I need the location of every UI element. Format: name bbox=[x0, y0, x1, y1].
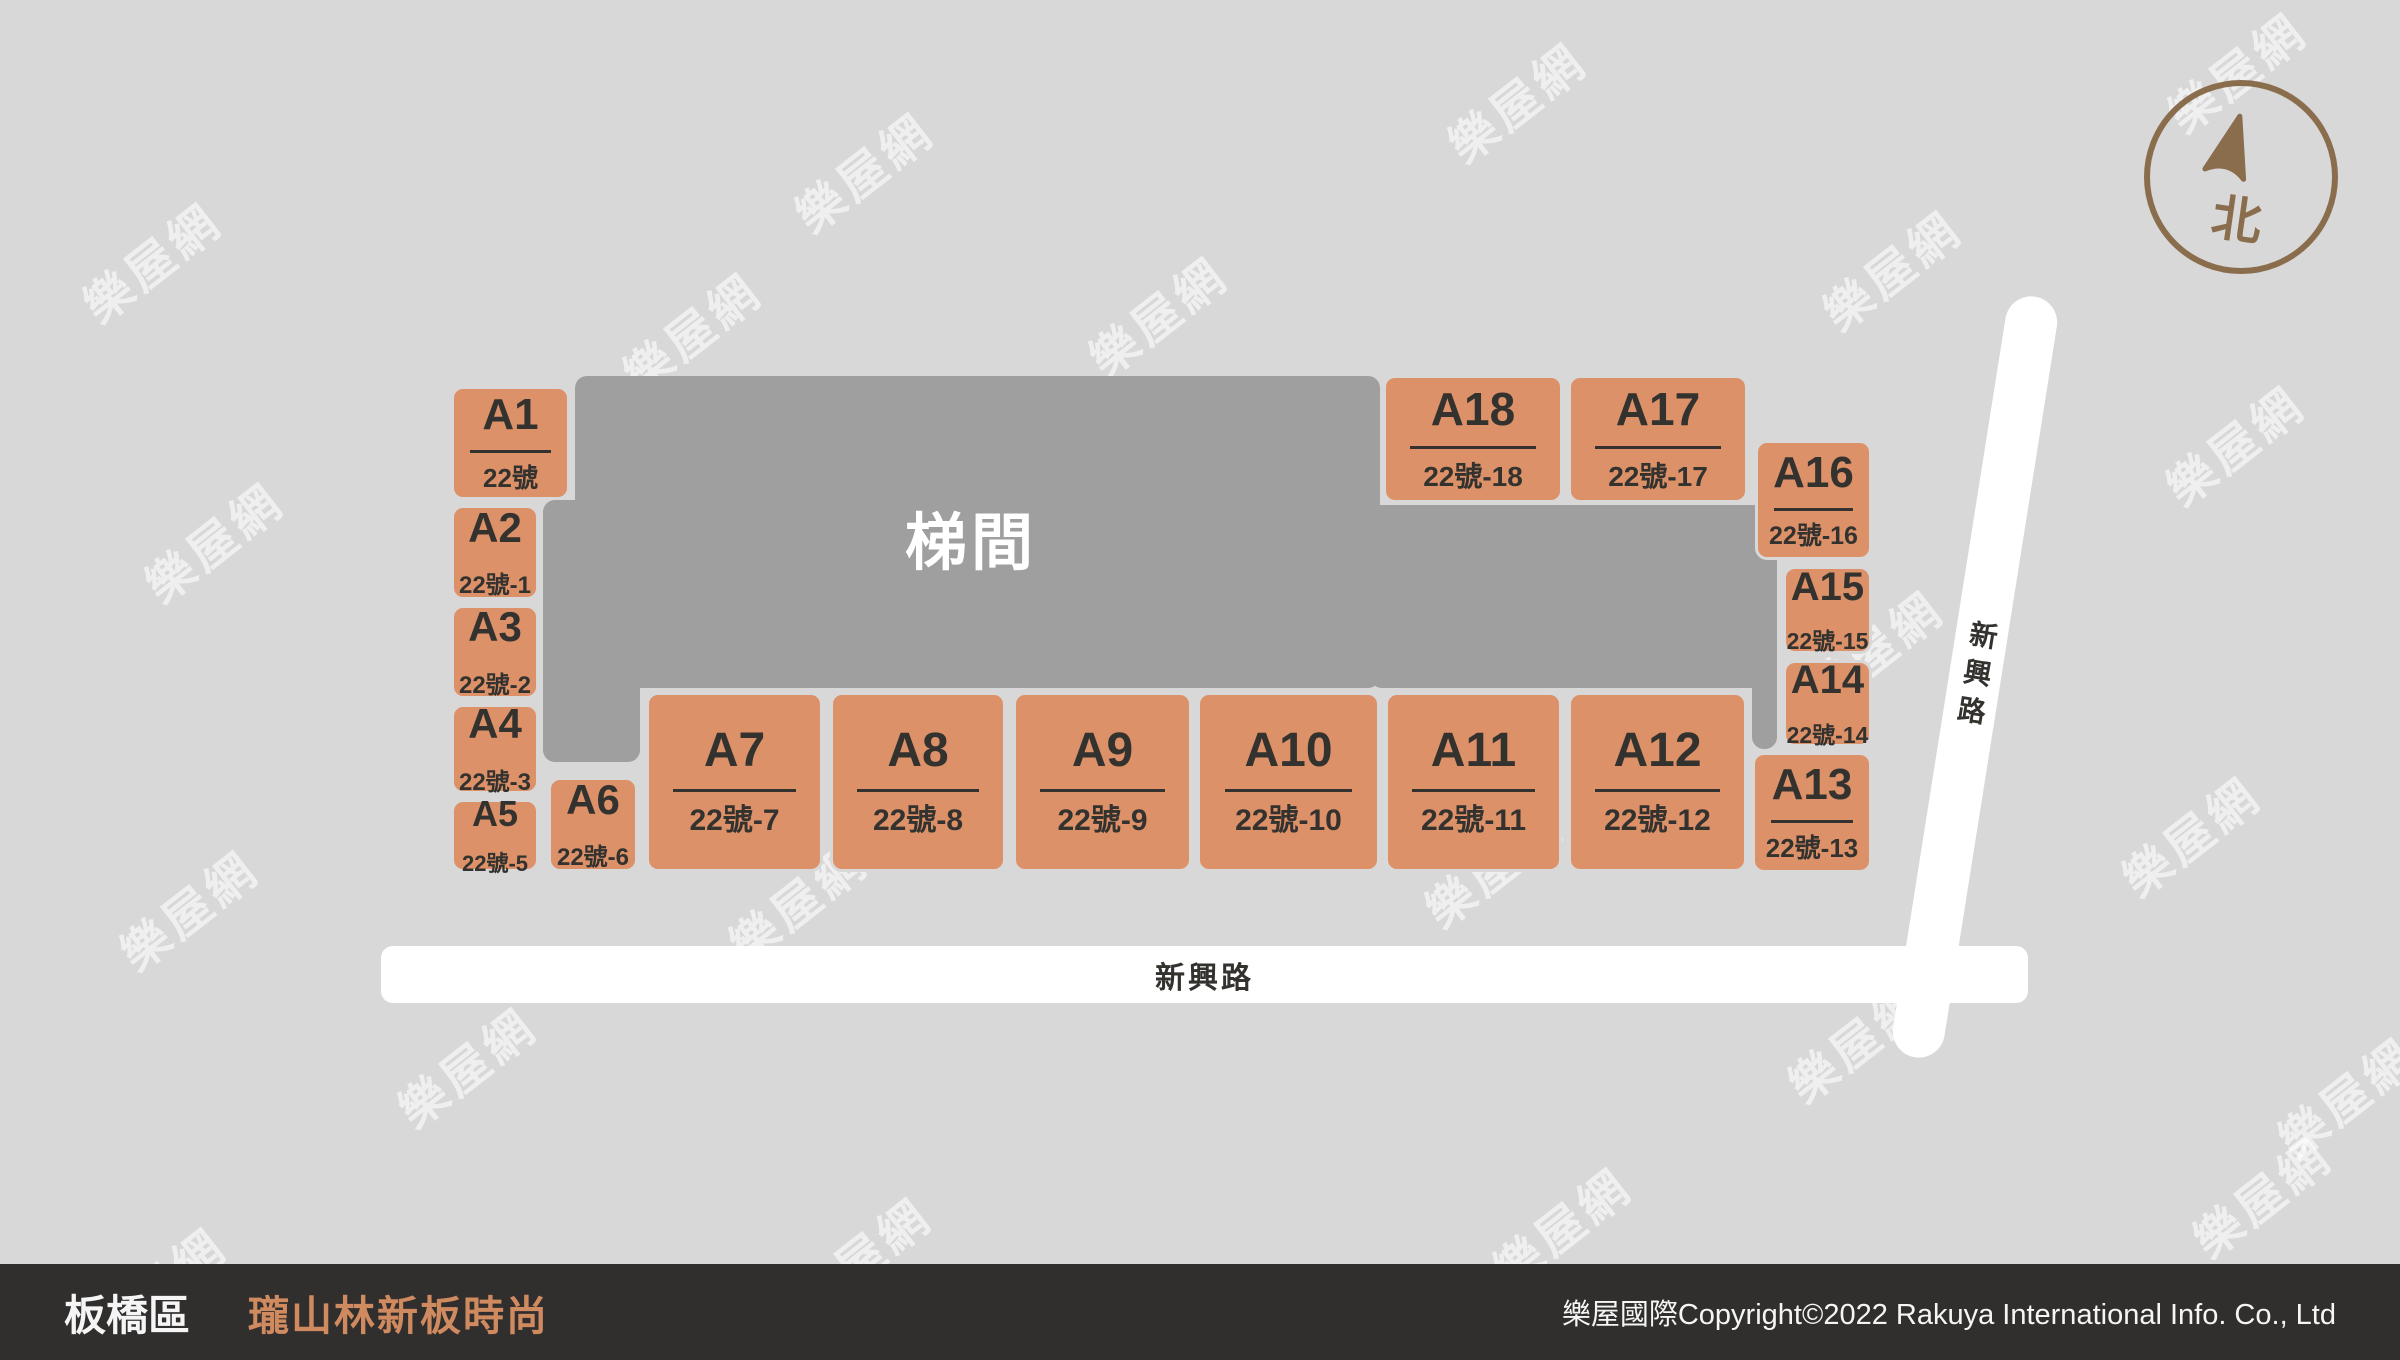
unit-address: 22號-14 bbox=[1787, 723, 1869, 747]
district-label: 板橋區 bbox=[64, 1282, 190, 1343]
unit-label: A7 bbox=[704, 727, 765, 776]
unit-address: 22號-7 bbox=[689, 805, 779, 837]
road-bottom-label: 新興路 bbox=[1155, 953, 1254, 997]
unit-A9[interactable]: A922號-9 bbox=[1013, 692, 1192, 872]
unit-label: A12 bbox=[1613, 727, 1701, 776]
road-bottom: 新興路 bbox=[381, 946, 2028, 1003]
unit-label: A8 bbox=[887, 727, 948, 776]
footer: 板橋區 瓏山林新板時尚 樂屋國際Copyright©2022 Rakuya In… bbox=[0, 1264, 2400, 1360]
copyright-text: 樂屋國際Copyright©2022 Rakuya International … bbox=[1562, 1291, 2336, 1333]
unit-divider bbox=[673, 789, 796, 792]
unit-A8[interactable]: A822號-8 bbox=[830, 692, 1006, 872]
units-layer: A122號A222號-1A322號-2A422號-3A522號-5A622號-6… bbox=[0, 0, 2400, 1360]
unit-label: A2 bbox=[468, 507, 522, 550]
unit-label: A4 bbox=[468, 703, 522, 746]
site-plan: 樂屋網樂屋網樂屋網樂屋網樂屋網樂屋網樂屋網樂屋網樂屋網樂屋網樂屋網樂屋網樂屋網樂… bbox=[0, 0, 2400, 1360]
north-arrow-icon bbox=[2205, 111, 2259, 179]
unit-A2[interactable]: A222號-1 bbox=[451, 505, 539, 600]
unit-divider bbox=[857, 789, 979, 792]
unit-label: A1 bbox=[482, 393, 538, 438]
unit-label: A11 bbox=[1431, 727, 1516, 776]
unit-label: A13 bbox=[1772, 763, 1853, 808]
unit-address: 22號-9 bbox=[1057, 805, 1147, 837]
unit-A13[interactable]: A1322號-13 bbox=[1752, 752, 1872, 873]
unit-address: 22號-2 bbox=[459, 673, 531, 698]
unit-A10[interactable]: A1022號-10 bbox=[1197, 692, 1380, 872]
unit-label: A9 bbox=[1072, 727, 1133, 776]
unit-divider bbox=[470, 450, 551, 453]
unit-divider bbox=[1410, 446, 1535, 449]
unit-address: 22號-11 bbox=[1421, 805, 1526, 837]
unit-A14[interactable]: A1422號-14 bbox=[1783, 660, 1872, 747]
project-name: 瓏山林新板時尚 bbox=[248, 1282, 549, 1342]
unit-A7[interactable]: A722號-7 bbox=[646, 692, 823, 872]
unit-address: 22號-1 bbox=[459, 573, 531, 598]
unit-address: 22號-15 bbox=[1787, 629, 1869, 653]
unit-A4[interactable]: A422號-3 bbox=[451, 704, 539, 794]
unit-divider bbox=[1771, 820, 1853, 823]
unit-A16[interactable]: A1622號-16 bbox=[1755, 440, 1872, 560]
unit-A3[interactable]: A322號-2 bbox=[451, 605, 539, 699]
unit-A11[interactable]: A1122號-11 bbox=[1385, 692, 1562, 872]
unit-A6[interactable]: A622號-6 bbox=[548, 777, 638, 872]
unit-divider bbox=[1595, 789, 1720, 792]
unit-divider bbox=[1412, 789, 1535, 792]
compass-graphic: 北 bbox=[2141, 77, 2341, 277]
unit-label: A18 bbox=[1431, 386, 1515, 433]
unit-label: A17 bbox=[1616, 386, 1700, 433]
compass-north-label: 北 bbox=[2208, 189, 2265, 251]
unit-label: A14 bbox=[1791, 660, 1864, 701]
unit-address: 22號-6 bbox=[557, 845, 629, 870]
unit-address: 22號 bbox=[483, 465, 538, 492]
unit-address: 22號-12 bbox=[1604, 805, 1711, 837]
unit-label: A6 bbox=[566, 779, 620, 822]
unit-label: A5 bbox=[472, 796, 518, 833]
unit-address: 22號-8 bbox=[873, 805, 963, 837]
unit-A15[interactable]: A1522號-15 bbox=[1783, 566, 1872, 654]
unit-address: 22號-18 bbox=[1423, 462, 1523, 491]
unit-A18[interactable]: A1822號-18 bbox=[1383, 375, 1563, 503]
compass: 北 bbox=[2141, 77, 2341, 277]
unit-address: 22號-5 bbox=[462, 852, 528, 875]
unit-A5[interactable]: A522號-5 bbox=[451, 799, 539, 872]
unit-A1[interactable]: A122號 bbox=[451, 386, 570, 500]
unit-label: A15 bbox=[1791, 567, 1864, 608]
unit-address: 22號-10 bbox=[1235, 805, 1342, 837]
unit-A12[interactable]: A1222號-12 bbox=[1568, 692, 1747, 872]
unit-address: 22號-3 bbox=[459, 770, 531, 795]
unit-divider bbox=[1225, 789, 1352, 792]
unit-address: 22號-13 bbox=[1766, 835, 1859, 862]
unit-A17[interactable]: A1722號-17 bbox=[1568, 375, 1748, 503]
unit-divider bbox=[1595, 446, 1720, 449]
unit-divider bbox=[1774, 508, 1854, 511]
unit-address: 22號-16 bbox=[1769, 523, 1858, 549]
unit-address: 22號-17 bbox=[1608, 462, 1708, 491]
unit-divider bbox=[1040, 789, 1165, 792]
unit-label: A3 bbox=[468, 606, 522, 649]
unit-label: A10 bbox=[1244, 727, 1332, 776]
unit-label: A16 bbox=[1773, 451, 1854, 496]
